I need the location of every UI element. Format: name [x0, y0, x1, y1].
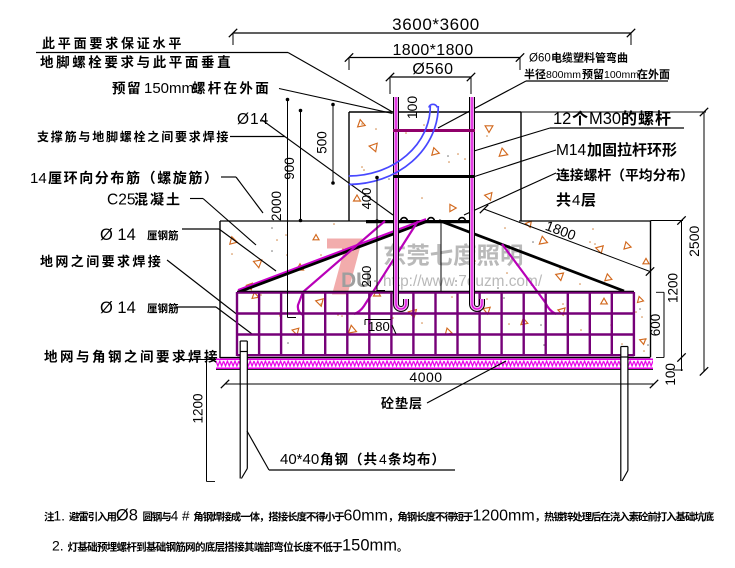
svg-text:900: 900 [282, 157, 297, 180]
svg-text:4: 4 [572, 192, 580, 209]
svg-text:Ø 14: Ø 14 [100, 226, 136, 244]
svg-text:混凝土: 混凝土 [134, 190, 182, 210]
svg-text:厘钢筋: 厘钢筋 [147, 228, 179, 243]
svg-text:2. 灯基础预埋螺杆到基础钢筋网的底层搭接其端部弯位长度不低: 2. 灯基础预埋螺杆到基础钢筋网的底层搭接其端部弯位长度不低于150mm。 [52, 537, 407, 555]
svg-text:共: 共 [556, 189, 571, 210]
svg-text:3600*3600: 3600*3600 [392, 15, 480, 34]
svg-text:的螺杆: 的螺杆 [621, 105, 672, 129]
svg-text:角钢（共: 角钢（共 [320, 448, 378, 468]
svg-text:C25: C25 [107, 192, 135, 209]
svg-text:180: 180 [368, 319, 390, 334]
svg-text:半径: 半径 [524, 66, 546, 82]
svg-text:40*40: 40*40 [280, 451, 319, 468]
svg-text:在外面: 在外面 [637, 66, 670, 82]
svg-text:Ø 14: Ø 14 [100, 299, 136, 317]
svg-text:层: 层 [581, 189, 596, 210]
svg-text:800mm: 800mm [546, 69, 581, 81]
svg-text:http://www.7duzm.com/: http://www.7duzm.com/ [383, 273, 543, 290]
svg-text:地脚螺栓要求与此平面垂直: 地脚螺栓要求与此平面垂直 [40, 51, 233, 71]
svg-text:电缆塑料管弯曲: 电缆塑料管弯曲 [551, 50, 628, 66]
svg-text:支撑筋与地脚螺栓之间要求焊接: 支撑筋与地脚螺栓之间要求焊接 [37, 128, 230, 145]
svg-text:M14: M14 [556, 142, 587, 159]
svg-text:地网与角钢之间要求焊接: 地网与角钢之间要求焊接 [44, 346, 220, 366]
svg-text:100: 100 [404, 96, 420, 120]
svg-text:100: 100 [663, 363, 678, 386]
svg-text:Ø14: Ø14 [237, 111, 269, 128]
svg-text:200: 200 [359, 266, 374, 288]
svg-text:4: 4 [379, 451, 387, 467]
svg-text:个: 个 [572, 105, 588, 129]
svg-text:500: 500 [315, 131, 330, 154]
svg-text:此平面要求保证水平: 此平面要求保证水平 [42, 33, 184, 52]
svg-text:150mm: 150mm [144, 80, 194, 97]
svg-text:M30: M30 [589, 110, 621, 128]
svg-text:1200: 1200 [666, 273, 681, 303]
svg-text:2500: 2500 [686, 226, 702, 257]
svg-text:预留: 预留 [582, 66, 604, 82]
svg-text:1800*1800: 1800*1800 [392, 42, 473, 59]
svg-text:14: 14 [30, 170, 47, 187]
svg-text:加固拉杆环形: 加固拉杆环形 [587, 139, 677, 160]
svg-text:Ø560: Ø560 [412, 61, 453, 78]
svg-text:预留: 预留 [112, 77, 142, 97]
svg-text:4000: 4000 [409, 369, 442, 385]
svg-text:1200: 1200 [191, 393, 206, 423]
svg-text:2000: 2000 [269, 191, 284, 221]
svg-text:Ø60: Ø60 [529, 53, 551, 65]
svg-text:100mm: 100mm [604, 69, 639, 81]
svg-text:条均布）: 条均布） [388, 448, 446, 468]
svg-text:螺杆在外面: 螺杆在外面 [192, 77, 271, 97]
svg-text:400: 400 [359, 188, 374, 210]
svg-text:砼垫层: 砼垫层 [381, 393, 423, 412]
svg-text:注1. 避雷引入用Ø8 圆钢与4 # 角钢焊接成一体，搭接长: 注1. 避雷引入用Ø8 圆钢与4 # 角钢焊接成一体，搭接长度不得小于60mm，… [44, 507, 715, 525]
svg-text:地网之间要求焊接: 地网之间要求焊接 [40, 251, 163, 270]
svg-text:连接螺杆（平均分布）: 连接螺杆（平均分布） [556, 164, 694, 184]
svg-text:厘环向分布筋（螺旋筋）: 厘环向分布筋（螺旋筋） [48, 168, 220, 188]
svg-text:600: 600 [648, 314, 663, 337]
svg-text:12: 12 [553, 110, 571, 128]
svg-text:厘钢筋: 厘钢筋 [147, 301, 179, 316]
